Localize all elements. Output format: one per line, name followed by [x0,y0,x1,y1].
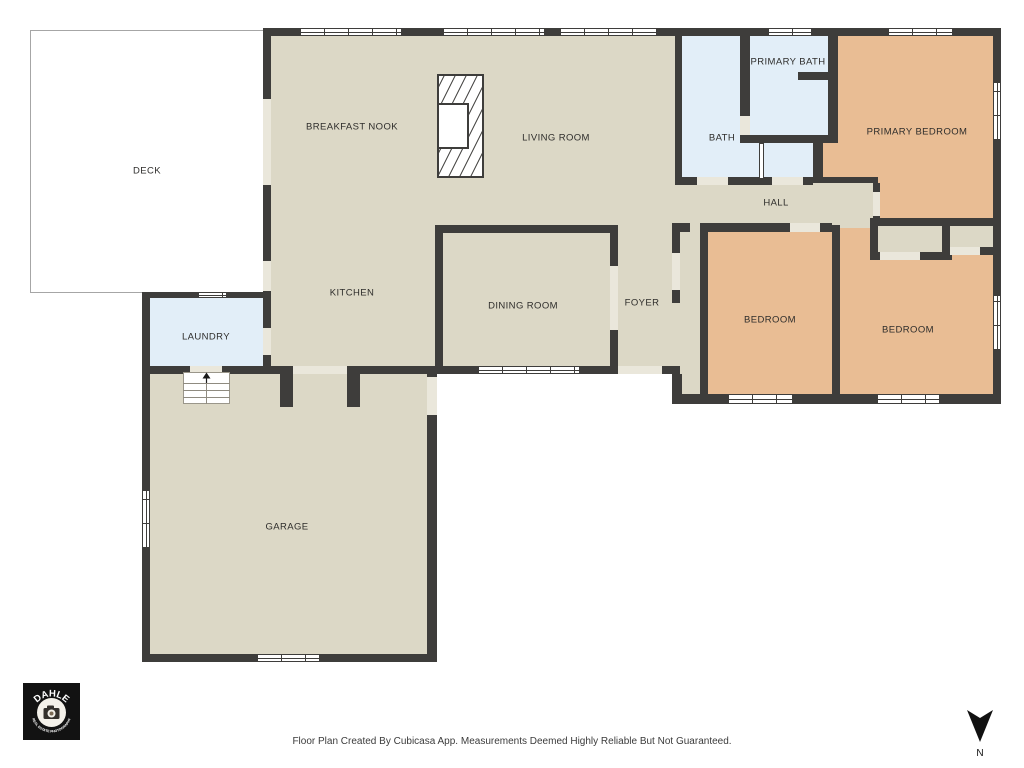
bedroom-1-area [708,228,832,398]
room-label-kitchen: KITCHEN [330,288,375,299]
wall-segment [820,177,878,183]
door-opening [697,177,728,185]
deck-area [30,30,266,293]
door-opening [263,99,271,185]
room-label-deck: DECK [133,166,161,177]
door-leaf [759,143,764,179]
north-label: N [976,748,983,758]
door-opening [610,266,618,330]
wall-segment [740,36,750,116]
wall-segment [832,225,840,398]
wall-segment [263,185,271,261]
wall-segment [280,368,293,407]
room-label-foyer: FOYER [625,298,660,309]
wall-segment [672,223,690,232]
wall-segment [798,72,830,80]
wall-segment [142,292,150,372]
door-opening [618,366,662,374]
wall-segment [740,135,838,143]
window [993,295,1001,350]
door-opening [672,253,680,290]
room-label-bedroom-1: BEDROOM [744,315,796,326]
room-label-dining-room: DINING ROOM [488,301,558,312]
door-opening [880,252,920,260]
wall-segment [672,374,682,396]
floor-plan: DECK BREAKFAST NOOK LIVING ROOM KITCHEN … [0,0,1024,768]
wall-segment [672,232,680,253]
wall-segment [427,415,437,662]
window [198,292,227,298]
door-opening [293,366,347,374]
door-opening [950,247,980,255]
garage-area [148,372,432,660]
wall-segment [435,225,618,233]
window [443,28,545,36]
wall-segment [263,28,271,99]
wall-segment [707,223,790,232]
wall-segment [435,225,443,372]
wall-segment [672,290,680,303]
room-label-living-room: LIVING ROOM [522,133,590,144]
window [300,28,402,36]
room-label-primary-bath: PRIMARY BATH [750,57,825,68]
window [888,28,953,36]
door-opening [873,192,880,216]
north-arrow-icon: N [963,706,997,758]
wall-segment [347,368,360,407]
window [768,28,812,36]
room-label-garage: GARAGE [265,522,308,533]
wall-segment [828,36,838,143]
room-label-laundry: LAUNDRY [182,332,230,343]
wall-segment [820,223,832,232]
window [993,82,1001,140]
room-label-hall: HALL [763,198,788,209]
room-label-bath: BATH [709,133,735,144]
window [560,28,657,36]
wall-segment [675,36,682,177]
staircase-icon [183,372,230,404]
wall-segment [870,218,993,226]
room-label-bedroom-2: BEDROOM [882,325,934,336]
door-opening [263,328,271,355]
room-label-primary-bedroom: PRIMARY BEDROOM [867,127,968,138]
door-opening [740,116,750,135]
footer-disclaimer: Floor Plan Created By Cubicasa App. Meas… [0,736,1024,747]
window [142,490,150,548]
window [877,394,940,404]
door-opening [772,177,803,185]
wall-segment [672,394,1001,404]
window [478,366,580,374]
wall-segment [700,223,708,398]
door-opening [263,261,271,291]
photographer-logo: DAHLE REAL ESTATE PHOTOGRAPHY [23,683,80,740]
wall-segment [873,183,880,192]
fireplace-icon [437,74,484,178]
door-opening [790,223,820,232]
room-label-breakfast-nook: BREAKFAST NOOK [306,122,398,133]
door-opening [427,377,437,415]
window [728,394,793,404]
window [257,654,320,662]
